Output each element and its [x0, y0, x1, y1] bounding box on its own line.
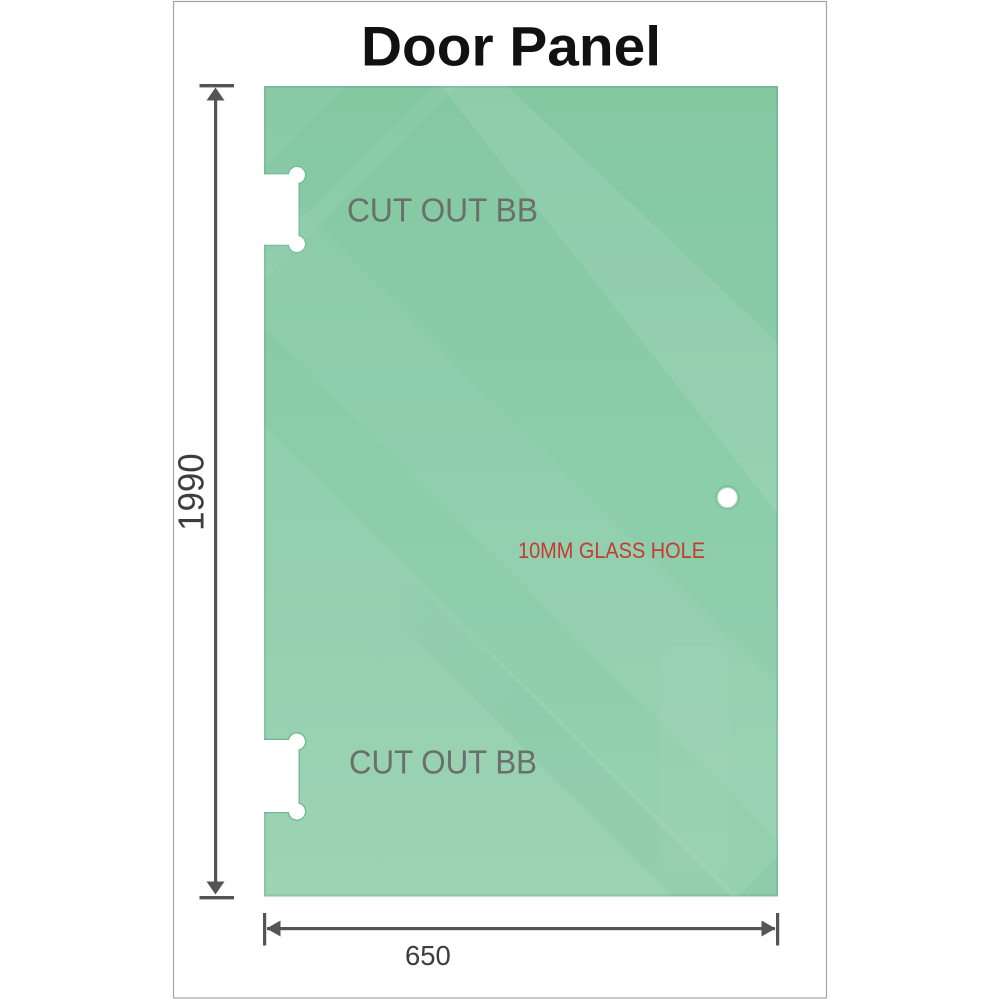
svg-text:10MM GLASS HOLE: 10MM GLASS HOLE	[518, 538, 705, 563]
svg-text:CUT OUT BB: CUT OUT BB	[347, 192, 538, 229]
svg-text:CUT OUT BB: CUT OUT BB	[349, 744, 537, 781]
svg-text:1990: 1990	[171, 453, 212, 530]
svg-text:650: 650	[405, 940, 451, 971]
svg-text:Door Panel: Door Panel	[361, 15, 661, 78]
